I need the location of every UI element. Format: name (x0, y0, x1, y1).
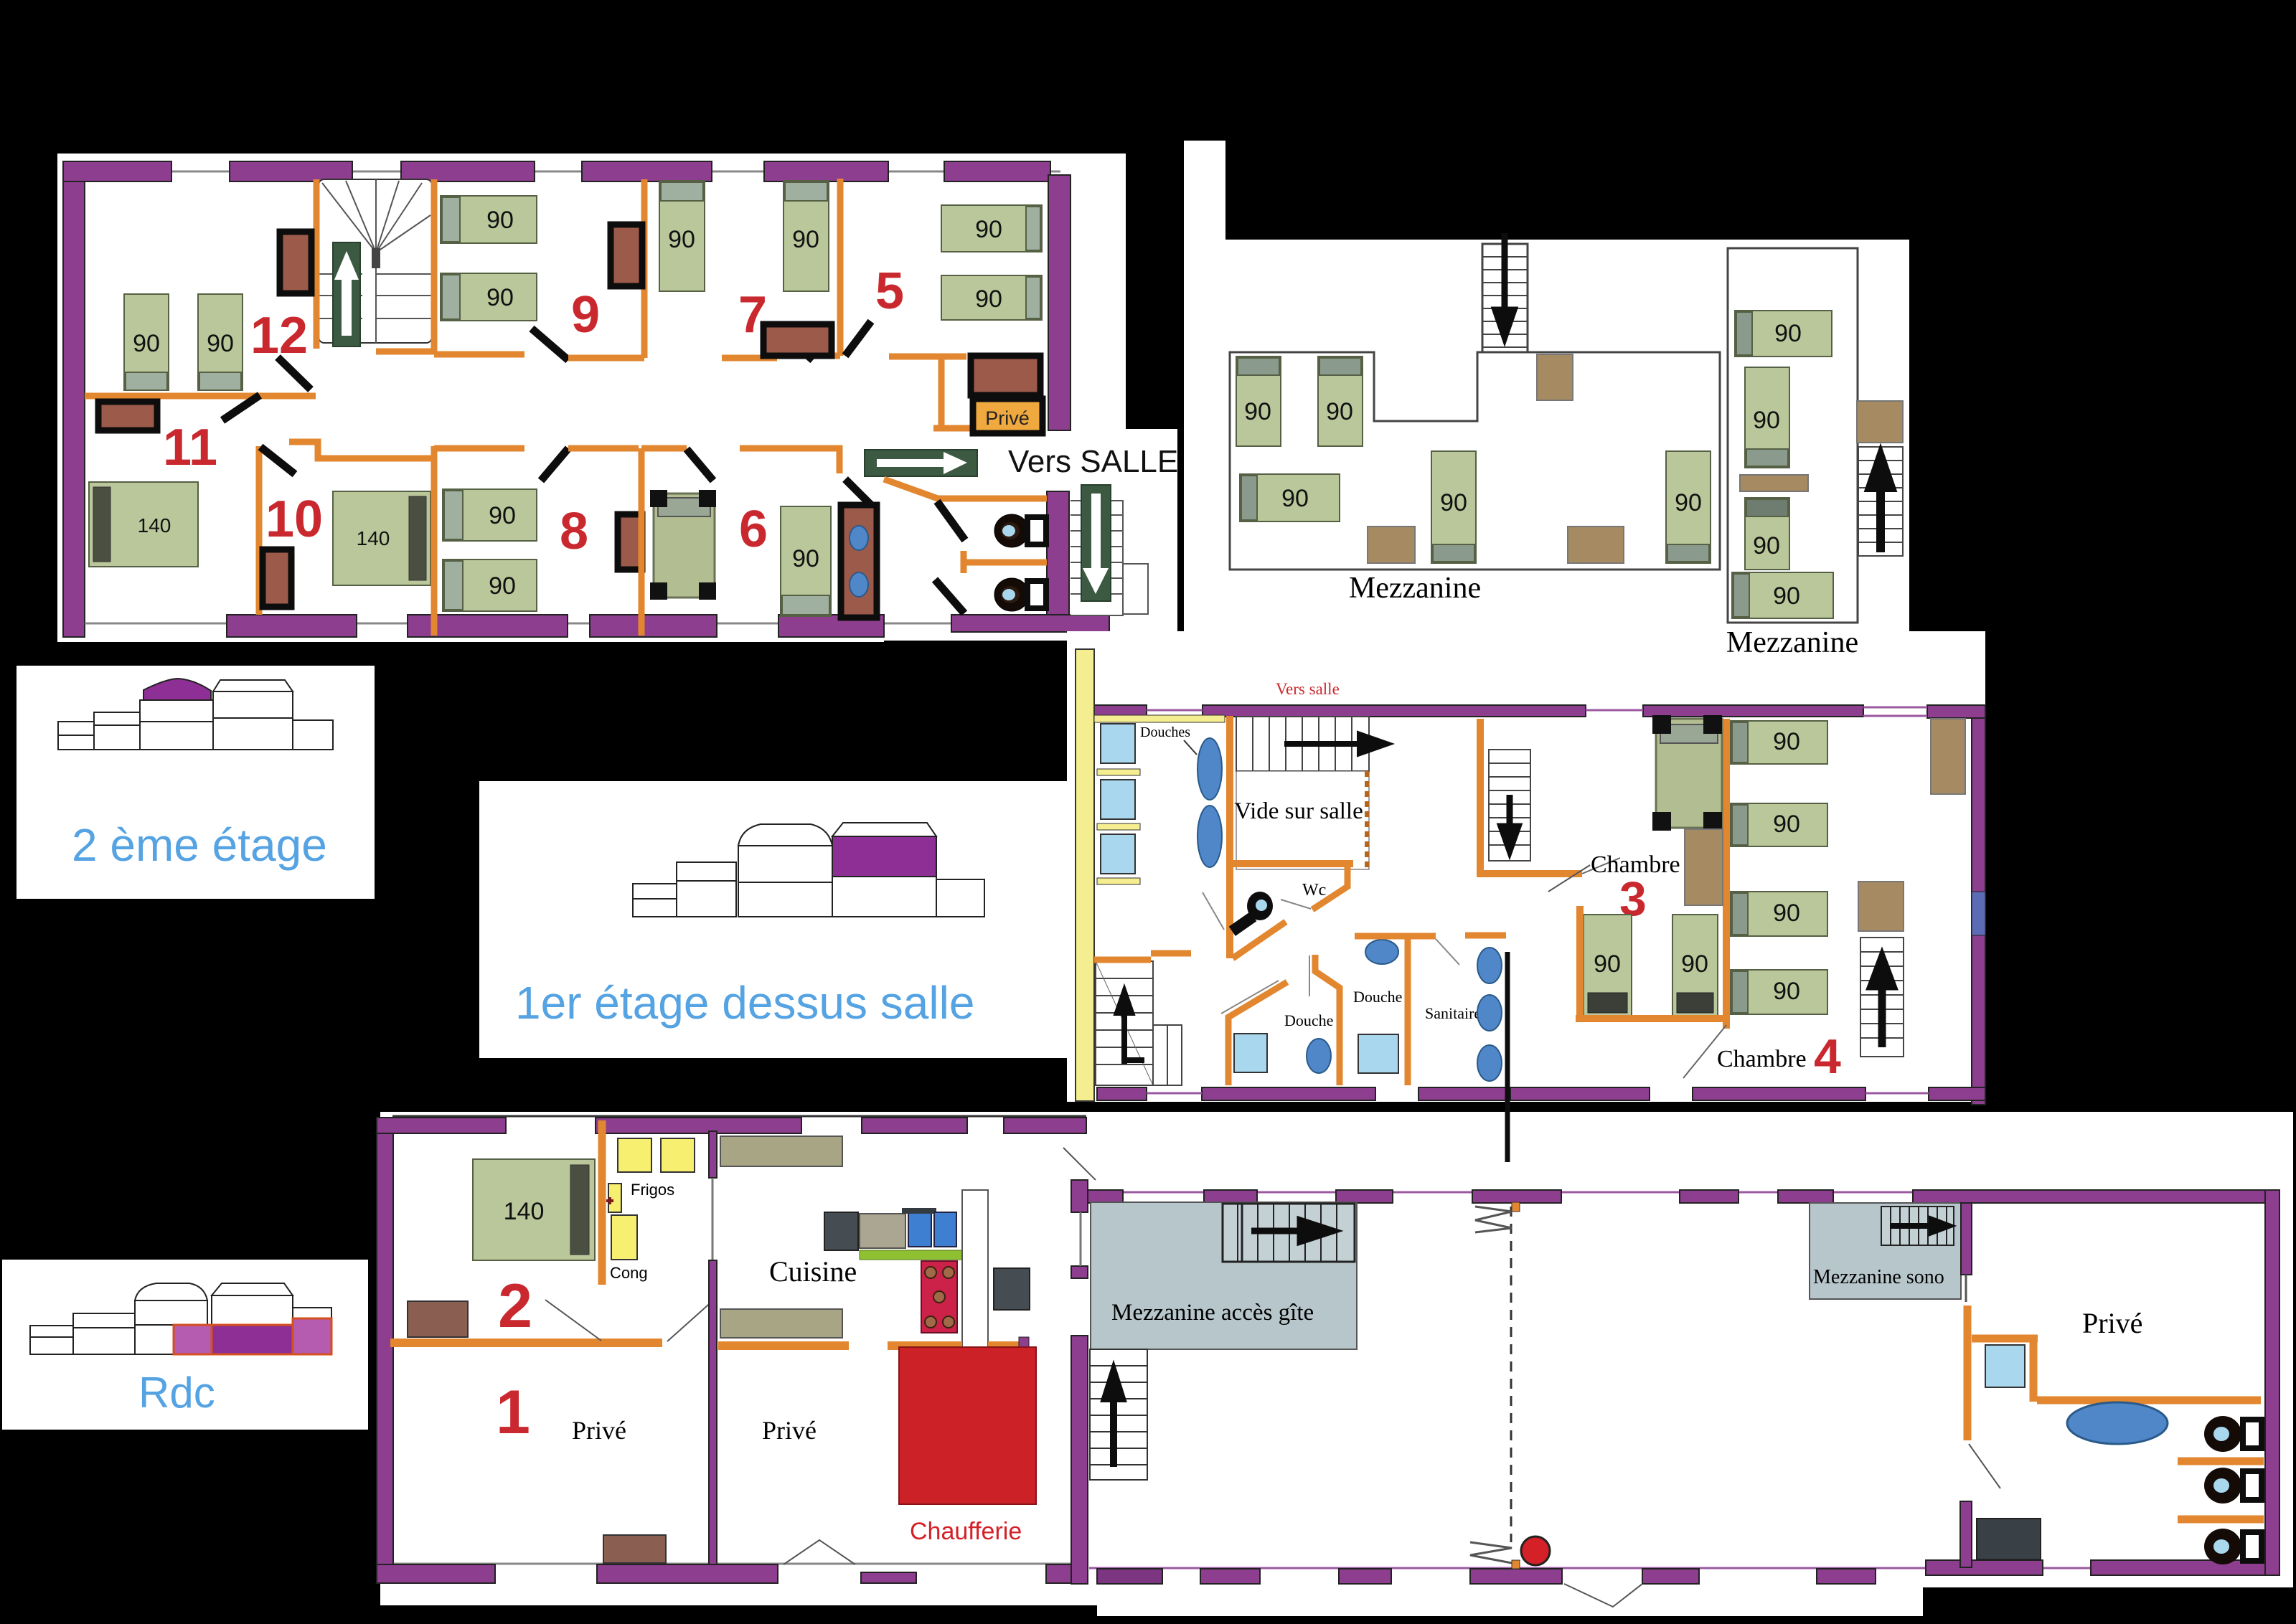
svg-text:90: 90 (1753, 407, 1780, 434)
svg-text:Douche: Douche (1353, 988, 1402, 1006)
svg-text:Rdc: Rdc (138, 1369, 215, 1417)
svg-text:Vers SALLE: Vers SALLE (1008, 444, 1178, 479)
svg-text:90: 90 (486, 284, 514, 311)
svg-text:11: 11 (163, 419, 217, 476)
svg-text:4: 4 (1814, 1029, 1841, 1084)
svg-text:Mezzanine sono: Mezzanine sono (1813, 1266, 1944, 1288)
svg-text:90: 90 (1675, 489, 1702, 516)
svg-text:Chambre: Chambre (1717, 1046, 1807, 1072)
svg-text:Mezzanine accès gîte: Mezzanine accès gîte (1111, 1300, 1314, 1326)
svg-text:Privé: Privé (985, 407, 1030, 429)
svg-text:90: 90 (1753, 532, 1780, 560)
svg-text:Wc: Wc (1302, 881, 1326, 900)
svg-text:Vide sur salle: Vide sur salle (1234, 798, 1363, 824)
svg-text:Frigos: Frigos (631, 1181, 674, 1199)
svg-text:90: 90 (1440, 489, 1467, 516)
svg-text:90: 90 (1281, 485, 1309, 512)
svg-text:90: 90 (1326, 398, 1353, 425)
svg-text:90: 90 (1244, 398, 1271, 425)
svg-text:90: 90 (1773, 728, 1800, 755)
svg-text:8: 8 (560, 503, 588, 560)
svg-text:Chaufferie: Chaufferie (910, 1518, 1022, 1545)
svg-text:Mezzanine: Mezzanine (1349, 572, 1481, 605)
svg-text:6: 6 (739, 501, 768, 558)
svg-text:140: 140 (138, 514, 171, 537)
svg-text:Douche: Douche (1284, 1011, 1333, 1029)
svg-text:Privé: Privé (572, 1416, 626, 1445)
svg-text:Privé: Privé (762, 1416, 817, 1445)
svg-text:5: 5 (875, 263, 904, 320)
svg-text:90: 90 (486, 207, 514, 234)
svg-text:90: 90 (1773, 978, 1800, 1005)
svg-text:140: 140 (504, 1198, 545, 1225)
svg-text:90: 90 (133, 330, 160, 357)
svg-text:90: 90 (792, 545, 819, 572)
svg-text:9: 9 (571, 286, 600, 344)
svg-text:90: 90 (489, 572, 516, 600)
svg-text:2: 2 (498, 1272, 532, 1341)
svg-text:Mezzanine: Mezzanine (1726, 626, 1858, 659)
svg-text:140: 140 (357, 527, 390, 549)
svg-text:90: 90 (489, 502, 516, 529)
svg-text:Vers salle: Vers salle (1276, 680, 1340, 698)
svg-text:Douches: Douches (1140, 724, 1190, 740)
svg-text:90: 90 (1774, 320, 1802, 347)
svg-text:1er étage dessus salle: 1er étage dessus salle (515, 977, 974, 1029)
svg-text:10: 10 (265, 491, 323, 548)
svg-text:Privé: Privé (2082, 1307, 2142, 1339)
svg-text:90: 90 (975, 285, 1002, 313)
svg-text:2 ème étage: 2 ème étage (72, 819, 327, 871)
svg-text:90: 90 (1773, 811, 1800, 838)
svg-text:90: 90 (1681, 950, 1708, 978)
svg-text:1: 1 (496, 1378, 530, 1447)
svg-text:90: 90 (1773, 900, 1800, 927)
svg-text:90: 90 (975, 216, 1002, 243)
svg-text:90: 90 (1594, 950, 1621, 978)
svg-text:Cong: Cong (610, 1264, 648, 1282)
svg-text:90: 90 (1773, 582, 1800, 610)
svg-text:90: 90 (668, 226, 695, 253)
svg-text:90: 90 (792, 226, 819, 253)
svg-text:Cuisine: Cuisine (769, 1255, 857, 1288)
svg-text:90: 90 (207, 330, 234, 357)
